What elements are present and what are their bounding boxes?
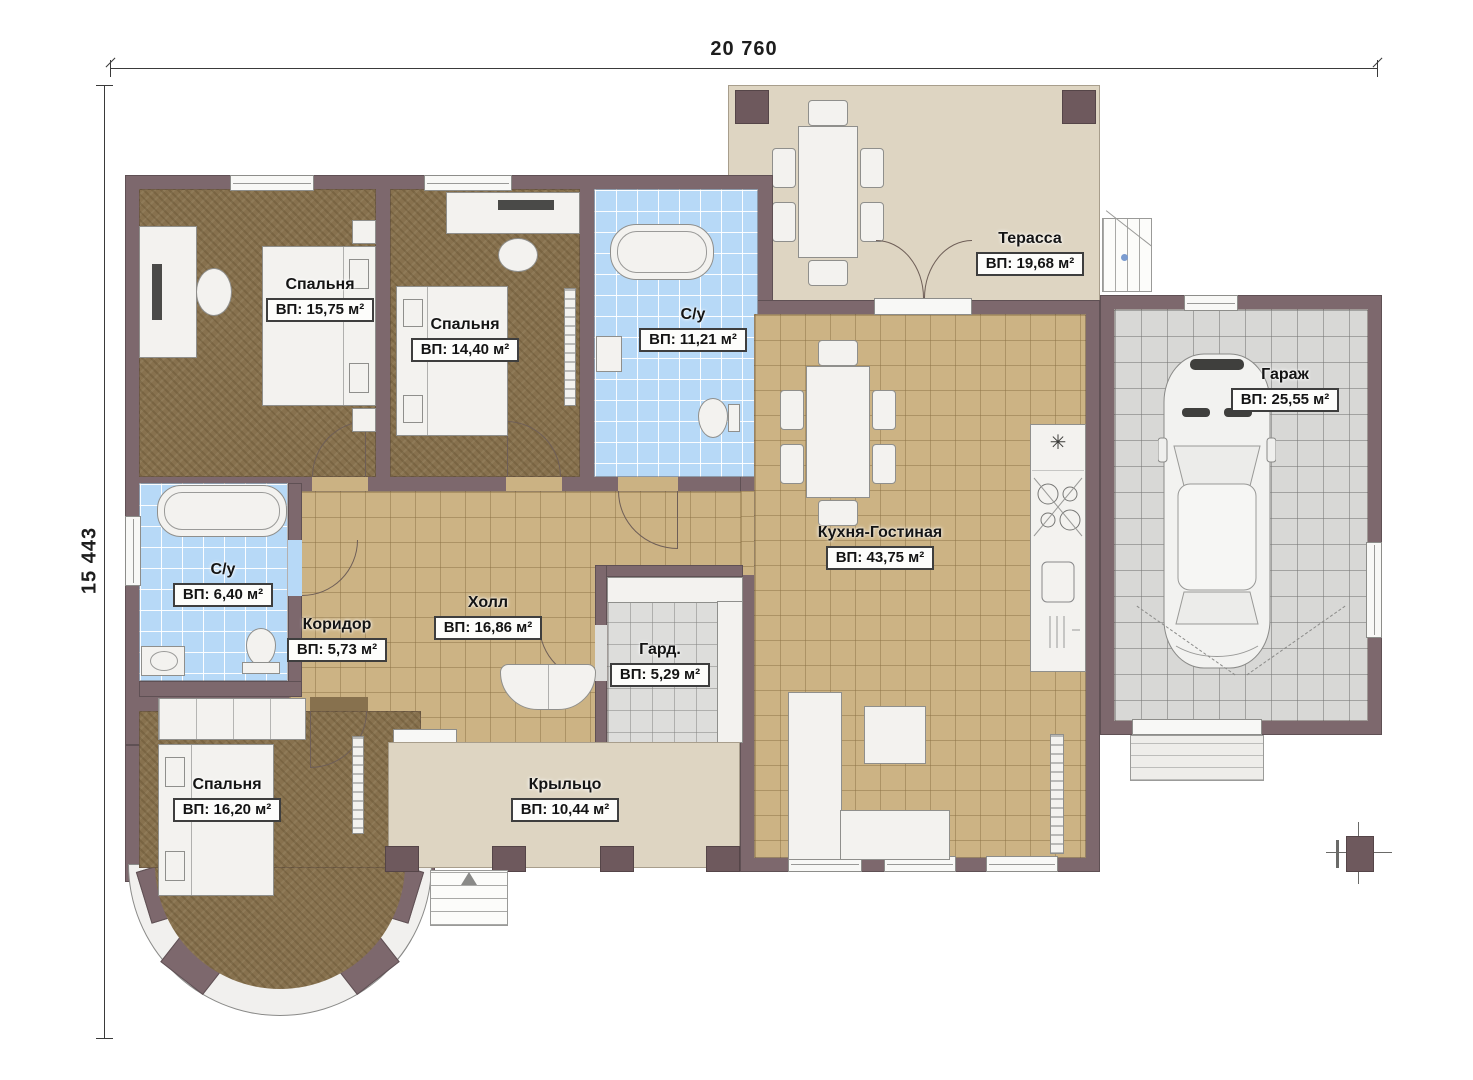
room-label-wardrobe: Гард. ВП: 5,29 м²: [590, 641, 730, 687]
room-area: ВП: 16,86 м²: [434, 616, 543, 640]
toilet-tank: [728, 404, 740, 432]
toilet-tank: [242, 662, 280, 674]
room-label-hall: Холл ВП: 16,86 м²: [413, 594, 563, 640]
room-area: ВП: 5,29 м²: [610, 663, 710, 687]
sofa: [840, 810, 950, 860]
room-name: Крыльцо: [485, 776, 645, 794]
dining-chair: [780, 444, 804, 484]
bathroom2-wall-bottom: [139, 681, 302, 697]
room-label-bedroom2: Спальня ВП: 14,40 м²: [385, 316, 545, 362]
room-name: С/у: [618, 306, 768, 324]
bathroom1-door-leaf: [677, 491, 678, 549]
pillow: [349, 363, 369, 393]
room-area: ВП: 15,75 м²: [266, 298, 375, 322]
bedroom3-door-opening: [310, 697, 368, 711]
sink-bowl: [150, 651, 178, 671]
room-label-bedroom3: Спальня ВП: 16,20 м²: [147, 776, 307, 822]
computer-icon: [152, 264, 162, 320]
dimension-height-label: 15 443: [79, 499, 102, 623]
pillar-tick: [1336, 840, 1339, 868]
terrace-table: [798, 126, 858, 258]
room-label-bathroom1: С/у ВП: 11,21 м²: [618, 306, 768, 352]
radiator: [1050, 734, 1064, 854]
porch-pier: [385, 846, 419, 872]
bed: [262, 246, 376, 406]
room-name: Гараж: [1210, 366, 1360, 384]
room-area: ВП: 43,75 м²: [826, 546, 935, 570]
window: [424, 175, 512, 191]
pillar: [1346, 836, 1374, 872]
radiator: [352, 736, 364, 834]
room-name: Спальня: [147, 776, 307, 794]
terrace-chair: [808, 100, 848, 126]
terrace-chair: [860, 202, 884, 242]
bathroom1-door-opening: [618, 477, 678, 491]
desk-chair: [196, 268, 232, 316]
bed-line: [343, 247, 344, 405]
pillow: [165, 851, 185, 881]
dining-chair: [818, 500, 858, 526]
dining-table: [806, 366, 870, 498]
room-label-terrace: Терасса ВП: 19,68 м²: [950, 230, 1110, 276]
wardrobe-shelf: [607, 577, 743, 603]
radiator: [564, 288, 576, 406]
window: [125, 516, 141, 586]
bedroom2-door-opening: [506, 477, 562, 491]
room-name: Спальня: [240, 276, 400, 294]
floor-plan: 20 760 15 443: [0, 0, 1473, 1080]
porch-pier: [706, 846, 740, 872]
bathtub: [610, 224, 714, 280]
room-area: ВП: 11,21 м²: [639, 328, 747, 352]
terrace-chair: [772, 148, 796, 188]
room-area: ВП: 25,55 м²: [1231, 388, 1340, 412]
room-label-porch: Крыльцо ВП: 10,44 м²: [485, 776, 645, 822]
room-label-bathroom2: С/у ВП: 6,40 м²: [148, 561, 298, 607]
room-area: ВП: 14,40 м²: [411, 338, 520, 362]
vent-symbol: ✳: [1030, 430, 1086, 455]
garage-window: [1366, 542, 1382, 638]
room-area: ВП: 10,44 м²: [511, 798, 620, 822]
porch-steps-arrow: [461, 872, 477, 885]
bathtub-inner: [617, 231, 707, 273]
stairs-marker: [1121, 254, 1128, 261]
desk: [446, 192, 580, 234]
room-label-kitchen: Кухня-Гостиная ВП: 43,75 м²: [760, 524, 1000, 570]
room-name: Кухня-Гостиная: [760, 524, 1000, 542]
garage-apron: [1130, 735, 1264, 781]
dining-chair: [780, 390, 804, 430]
room-name: Гард.: [590, 641, 730, 659]
room-area: ВП: 19,68 м²: [976, 252, 1085, 276]
porch-pier: [492, 846, 526, 872]
bedroom3-door-leaf: [310, 711, 311, 768]
dimension-tick: [96, 85, 113, 86]
room-name: Холл: [413, 594, 563, 612]
bench-line: [548, 665, 549, 709]
room-name: С/у: [148, 561, 298, 579]
coffee-table: [864, 706, 926, 764]
terrace-post: [1062, 90, 1096, 124]
terrace-door-opening: [874, 298, 972, 315]
room-name: Терасса: [950, 230, 1110, 248]
dining-chair: [872, 444, 896, 484]
terrace-post: [735, 90, 769, 124]
dimension-line-top: [110, 68, 1378, 69]
nightstand: [352, 408, 376, 432]
garage-door-opening: [1132, 719, 1262, 735]
room-area: ВП: 6,40 м²: [173, 583, 273, 607]
bedroom1-door-opening: [312, 477, 368, 491]
dimension-width-label: 20 760: [644, 38, 844, 61]
room-label-bedroom1: Спальня ВП: 15,75 м²: [240, 276, 400, 322]
desk: [139, 226, 197, 358]
dining-chair: [872, 390, 896, 430]
wardrobe-wall-top: [595, 565, 743, 577]
bathtub-inner: [164, 492, 280, 530]
room-name: Коридор: [262, 616, 412, 634]
terrace-chair: [808, 260, 848, 286]
sink: [141, 646, 185, 676]
pillow: [403, 395, 423, 423]
stove-sink-icon: [1030, 470, 1086, 670]
room-label-garage: Гараж ВП: 25,55 м²: [1210, 366, 1360, 412]
garage-window: [1184, 295, 1238, 311]
closet: [158, 698, 306, 740]
room-area: ВП: 16,20 м²: [173, 798, 282, 822]
sofa: [788, 692, 842, 860]
room-name: Спальня: [385, 316, 545, 334]
bathtub: [157, 485, 287, 537]
room-label-corridor: Коридор ВП: 5,73 м²: [262, 616, 412, 662]
dimension-line-left: [104, 85, 105, 1038]
porch-pier: [600, 846, 634, 872]
window: [986, 856, 1058, 872]
nightstand: [352, 220, 376, 244]
terrace-chair: [860, 148, 884, 188]
window: [230, 175, 314, 191]
desk-chair: [498, 238, 538, 272]
dimension-tick: [96, 1038, 113, 1039]
room-area: ВП: 5,73 м²: [287, 638, 387, 662]
computer-icon: [498, 200, 554, 210]
terrace-chair: [772, 202, 796, 242]
dining-chair: [818, 340, 858, 366]
